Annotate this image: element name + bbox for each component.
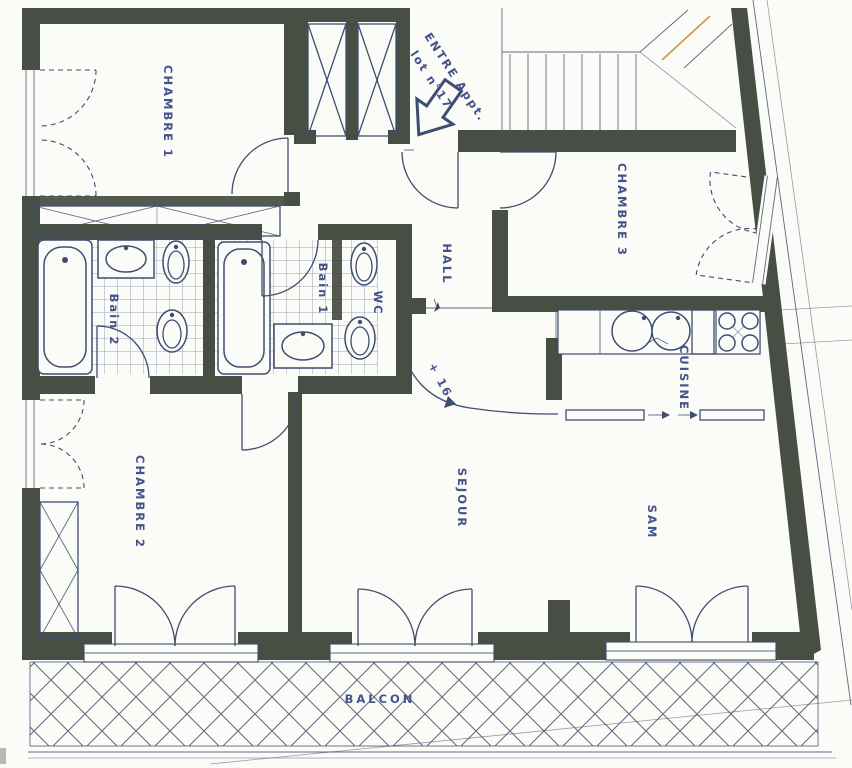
room-label-bain1: Bain 1 <box>316 263 330 316</box>
floor-plan-page: CHAMBRE 1 CHAMBRE 2 CHAMBRE 3 HALL SEJOU… <box>0 0 852 768</box>
bidet-icon <box>351 243 377 285</box>
toilet-icon <box>157 310 187 352</box>
room-label-chambre3: CHAMBRE 3 <box>615 163 629 257</box>
room-label-hall: HALL <box>440 243 454 284</box>
room-label-chambre1: CHAMBRE 1 <box>161 65 175 159</box>
bidet-icon <box>163 241 189 283</box>
room-label-bain2: Bain 2 <box>107 294 121 347</box>
room-label-balcon: BALCON <box>345 692 416 706</box>
stove-icon <box>716 310 760 354</box>
sink-icon <box>98 240 154 278</box>
room-label-cuisine: CUISINE <box>677 345 691 411</box>
toilet-icon <box>345 317 375 359</box>
sink-icon <box>274 324 332 368</box>
window-sills <box>84 642 776 662</box>
room-label-chambre2: CHAMBRE 2 <box>133 455 147 549</box>
scan-artifact <box>0 748 6 764</box>
room-label-sejour: SEJOUR <box>455 468 469 528</box>
balcony-lattice <box>30 662 818 746</box>
floor-plan-drawing: CHAMBRE 1 CHAMBRE 2 CHAMBRE 3 HALL SEJOU… <box>0 0 852 768</box>
bathtub-icon <box>38 240 92 374</box>
room-label-wc: WC <box>371 290 385 315</box>
room-label-sam: SAM <box>645 505 659 540</box>
